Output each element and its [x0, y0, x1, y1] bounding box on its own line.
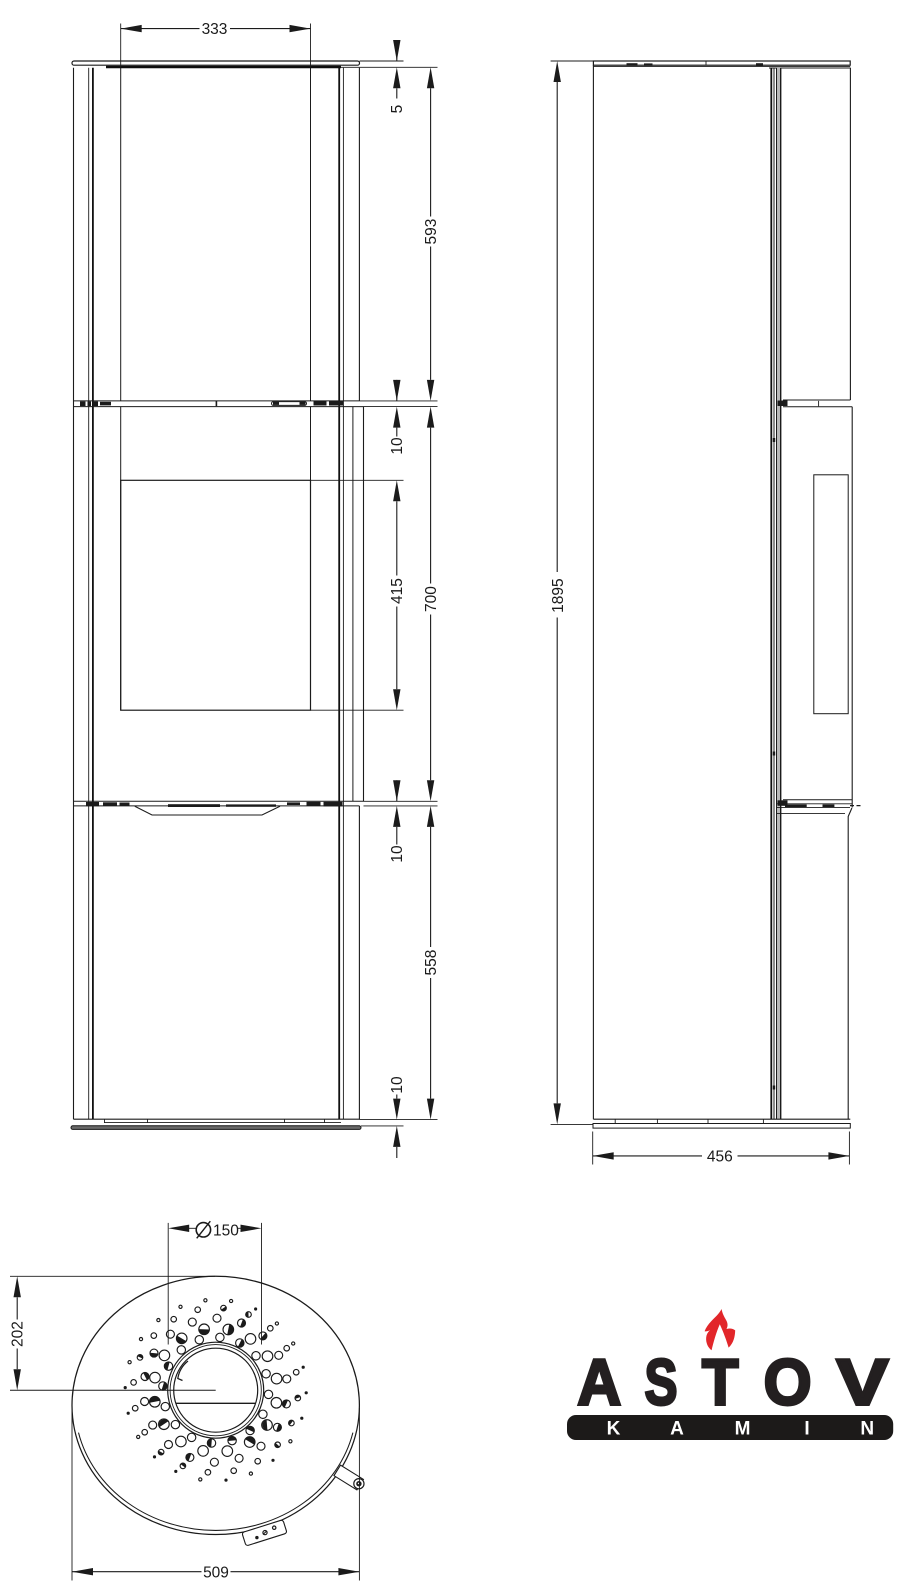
svg-text:509: 509 [203, 1564, 229, 1581]
svg-text:593: 593 [423, 219, 440, 245]
svg-text:A: A [670, 1418, 684, 1439]
svg-text:456: 456 [707, 1149, 733, 1166]
svg-text:K: K [607, 1418, 621, 1439]
svg-text:1895: 1895 [550, 578, 567, 612]
svg-text:T: T [702, 1346, 739, 1418]
svg-text:A: A [577, 1346, 621, 1418]
svg-text:N: N [860, 1418, 874, 1439]
svg-text:5: 5 [389, 105, 406, 114]
svg-text:S: S [645, 1346, 678, 1418]
svg-text:415: 415 [389, 578, 406, 604]
svg-text:333: 333 [202, 21, 228, 38]
svg-text:700: 700 [423, 586, 440, 612]
svg-text:10: 10 [389, 845, 406, 863]
svg-text:O: O [764, 1346, 812, 1418]
svg-text:10: 10 [389, 437, 406, 455]
svg-text:I: I [804, 1418, 809, 1439]
svg-text:202: 202 [10, 1321, 27, 1347]
svg-text:M: M [735, 1418, 751, 1439]
svg-text:10: 10 [389, 1076, 406, 1094]
svg-text:V: V [837, 1346, 889, 1418]
svg-text:150: 150 [213, 1223, 239, 1240]
svg-text:558: 558 [423, 950, 440, 976]
